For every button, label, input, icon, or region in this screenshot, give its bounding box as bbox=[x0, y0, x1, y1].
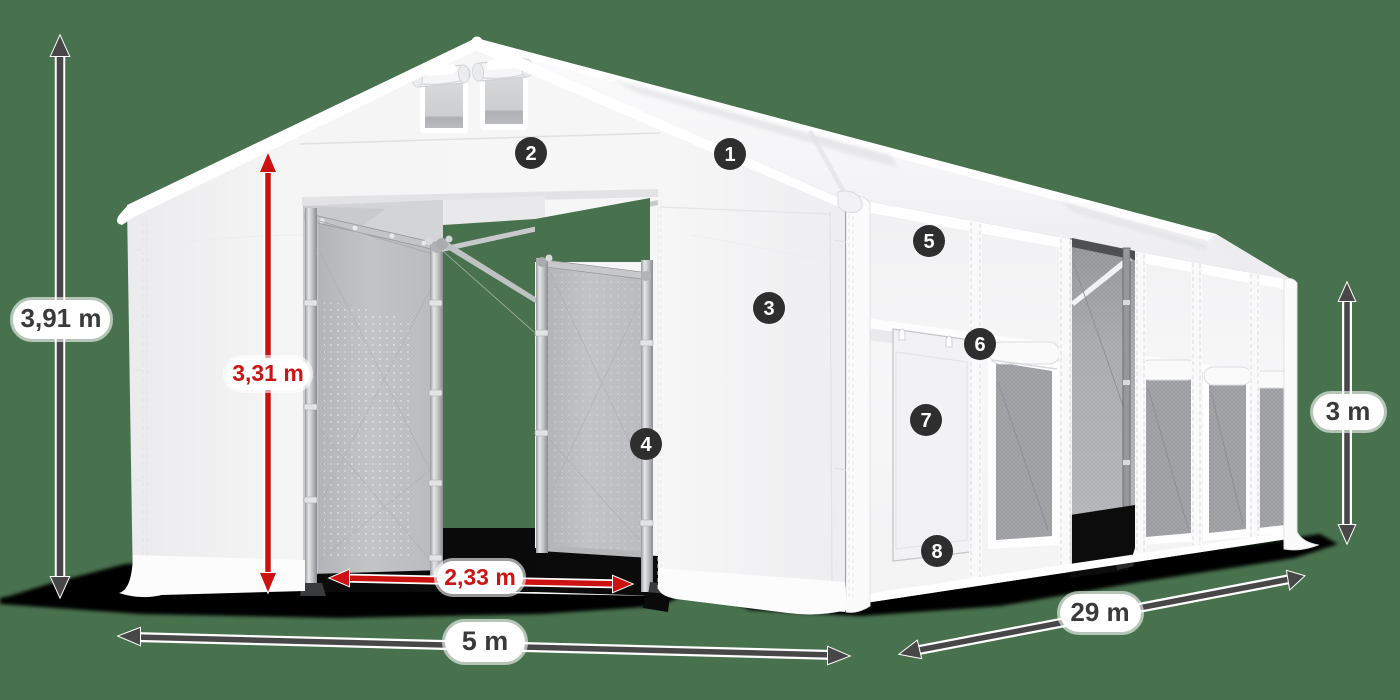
svg-text:7: 7 bbox=[920, 410, 931, 432]
svg-text:5: 5 bbox=[923, 231, 934, 253]
svg-text:4: 4 bbox=[640, 434, 652, 456]
svg-text:2: 2 bbox=[525, 143, 536, 165]
svg-text:2,33 m: 2,33 m bbox=[444, 564, 516, 590]
svg-text:1: 1 bbox=[724, 144, 735, 166]
svg-text:29 m: 29 m bbox=[1070, 597, 1129, 627]
svg-text:5 m: 5 m bbox=[462, 626, 509, 656]
svg-text:3: 3 bbox=[763, 298, 774, 320]
svg-text:3,91 m: 3,91 m bbox=[21, 303, 102, 333]
svg-text:8: 8 bbox=[931, 541, 942, 563]
svg-text:6: 6 bbox=[974, 334, 985, 356]
svg-text:3 m: 3 m bbox=[1326, 396, 1371, 426]
svg-text:3,31 m: 3,31 m bbox=[232, 360, 304, 386]
